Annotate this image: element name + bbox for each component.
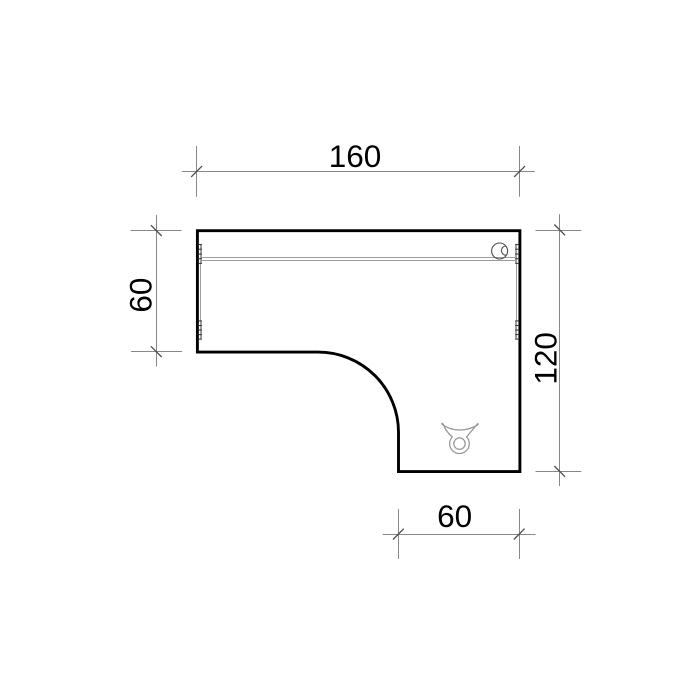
svg-text:60: 60 — [123, 278, 159, 313]
svg-text:160: 160 — [329, 138, 382, 174]
svg-text:60: 60 — [437, 498, 472, 534]
svg-text:120: 120 — [528, 332, 564, 385]
